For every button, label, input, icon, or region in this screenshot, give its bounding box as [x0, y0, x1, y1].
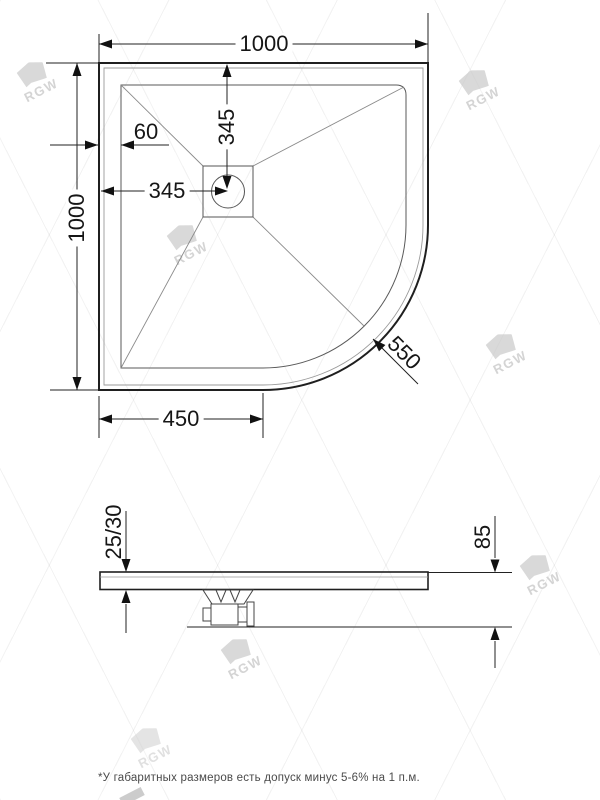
basin-slope-diagonals [121, 85, 404, 368]
section-view-arrowheads [122, 559, 500, 640]
dim-drain-offset-x-label: 345 [145, 180, 190, 202]
plan-view-arrowheads [73, 40, 429, 424]
dim-rim-width-label: 60 [134, 121, 158, 143]
dim-top-width-label: 1000 [236, 33, 293, 55]
dim-straight-edge-label: 450 [159, 408, 204, 430]
tolerance-footnote: *У габаритных размеров есть допуск минус… [98, 772, 420, 784]
plan-view-outline [99, 63, 428, 390]
drawing-canvas: RGW RGW RGW RGW RGW RGW RGW [0, 0, 600, 800]
drawing-svg [0, 0, 600, 800]
drain-trap-assembly [203, 590, 254, 626]
plan-view-dimensions [46, 13, 428, 438]
dim-total-height-label: 85 [472, 525, 494, 549]
dim-left-height-label: 1000 [66, 190, 88, 247]
dim-drain-offset-y-label: 345 [216, 105, 238, 150]
tray-section-slab [100, 572, 428, 590]
dim-thickness-label: 25/30 [103, 504, 125, 559]
section-view-outline [100, 572, 428, 626]
